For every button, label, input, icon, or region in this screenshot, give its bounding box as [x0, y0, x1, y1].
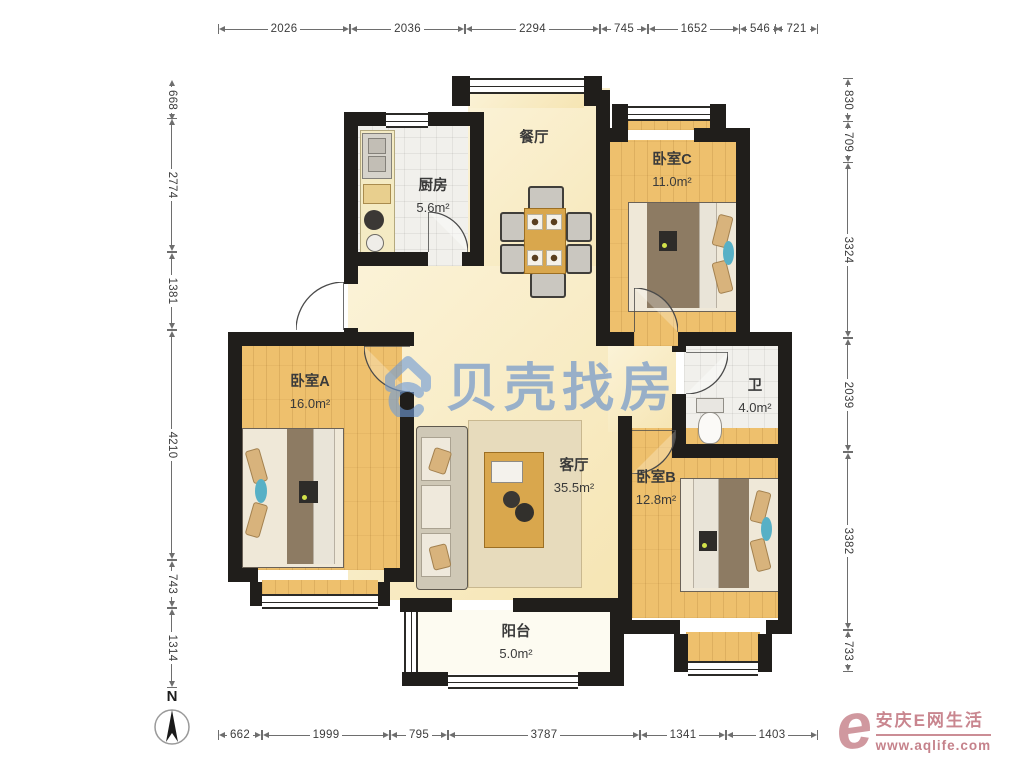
sofa	[416, 426, 468, 590]
dimension-left: 743	[165, 560, 179, 608]
dimension-right: 733	[841, 630, 855, 672]
compass-icon	[152, 706, 192, 748]
wall	[402, 672, 448, 686]
floorplan-image: 餐厅 厨房5.6m² 卧室C11.0m² 卧室A16.0m² 客厅35.5m² …	[0, 0, 1024, 768]
bedroom-a-bay-window	[262, 594, 378, 609]
wall	[578, 672, 624, 686]
wall	[766, 620, 792, 634]
aqlife-e-logo: e	[833, 698, 875, 754]
wall	[228, 568, 258, 582]
dimension-top: 1652	[648, 22, 740, 36]
balcony-window	[448, 675, 578, 689]
wall	[596, 332, 634, 346]
bedroom-a-bed	[242, 428, 344, 568]
dimension-bottom: 1403	[726, 728, 818, 742]
wall	[596, 128, 628, 142]
living-label: 客厅35.5m²	[528, 456, 620, 497]
balcony-side-window	[404, 612, 418, 672]
cutting-board	[363, 184, 391, 204]
wall	[344, 112, 358, 274]
balcony-label: 阳台5.0m²	[470, 622, 562, 663]
wall	[250, 582, 262, 606]
dimension-left: 2774	[165, 118, 179, 252]
kitchen-window	[386, 113, 428, 128]
plate	[527, 214, 543, 230]
north-compass: N	[152, 688, 192, 753]
bathroom-label: 卫4.0m²	[724, 376, 786, 417]
wall	[618, 620, 680, 634]
dimension-top: 2036	[350, 22, 465, 36]
dimension-right: 2039	[841, 338, 855, 452]
wall	[344, 252, 428, 266]
wall	[400, 332, 414, 346]
wall	[736, 128, 750, 346]
north-label: N	[152, 688, 192, 705]
wall	[228, 332, 242, 582]
dining-chair	[500, 212, 526, 242]
wall	[344, 266, 358, 284]
stove-burner	[364, 210, 384, 230]
bedroom-c-label: 卧室C11.0m²	[612, 150, 732, 191]
dimension-bottom: 662	[218, 728, 262, 742]
wall	[778, 444, 792, 634]
bedroom-b-bay-window	[688, 661, 758, 676]
wall	[674, 634, 688, 672]
wall	[672, 444, 792, 458]
dining-bay-window	[470, 78, 584, 94]
wall	[452, 76, 470, 106]
dimension-bottom: 1341	[640, 728, 726, 742]
sink-basin	[368, 156, 386, 172]
dining-label: 餐厅	[484, 128, 584, 150]
bedroom-b-bay-floor	[686, 632, 760, 664]
dimension-right: 830	[841, 78, 855, 122]
dining-chair	[500, 244, 526, 274]
bedroom-b-label: 卧室B12.8m²	[608, 468, 704, 509]
wall	[400, 598, 452, 612]
plate	[527, 250, 543, 266]
dining-chair	[530, 272, 566, 298]
bedroom-a-label: 卧室A16.0m²	[250, 372, 370, 413]
wall	[610, 610, 624, 674]
aqlife-text-block: 安庆E网生活 www.aqlife.com	[876, 706, 992, 753]
wall	[710, 104, 726, 130]
dimension-top: 546	[740, 22, 775, 36]
aqlife-site-name: 安庆E网生活	[876, 706, 992, 731]
kitchen-door	[428, 212, 468, 252]
dimension-right: 709	[841, 122, 855, 162]
dimension-right: 3382	[841, 452, 855, 630]
plate	[546, 250, 562, 266]
dimension-bottom: 1999	[262, 728, 390, 742]
dimension-left: 668	[165, 80, 179, 118]
wall	[758, 634, 772, 672]
wall	[678, 332, 792, 346]
beike-logo-icon	[380, 351, 436, 417]
beike-watermark: 贝壳找房	[380, 346, 678, 421]
bedroom-c-bay-window	[628, 106, 710, 121]
dining-chair	[566, 212, 592, 242]
wall	[378, 582, 390, 606]
entry-door	[296, 282, 344, 330]
wall	[228, 332, 414, 346]
aqlife-watermark: e 安庆E网生活 www.aqlife.com	[836, 700, 991, 753]
dimension-left: 1314	[165, 608, 179, 688]
bedroom-c-door	[634, 288, 678, 332]
aqlife-site-url: www.aqlife.com	[876, 734, 992, 753]
dimension-left: 4210	[165, 330, 179, 560]
wall	[612, 104, 628, 130]
dimension-right: 3324	[841, 162, 855, 338]
bathroom-door	[686, 352, 728, 394]
wall	[513, 598, 624, 612]
dimension-left: 1381	[165, 252, 179, 330]
dimension-top: 2026	[218, 22, 350, 36]
dimension-top: 2294	[465, 22, 600, 36]
dimension-bottom: 3787	[448, 728, 640, 742]
sink-basin	[368, 138, 386, 154]
dining-chair	[566, 244, 592, 274]
toilet	[696, 398, 724, 444]
plate	[546, 214, 562, 230]
beike-watermark-text: 贝壳找房	[446, 346, 678, 421]
dimension-top: 721	[775, 22, 818, 36]
kettle	[366, 234, 384, 252]
dimension-top: 745	[600, 22, 648, 36]
kitchen-label: 厨房5.6m²	[388, 176, 478, 217]
dimension-bottom: 795	[390, 728, 448, 742]
